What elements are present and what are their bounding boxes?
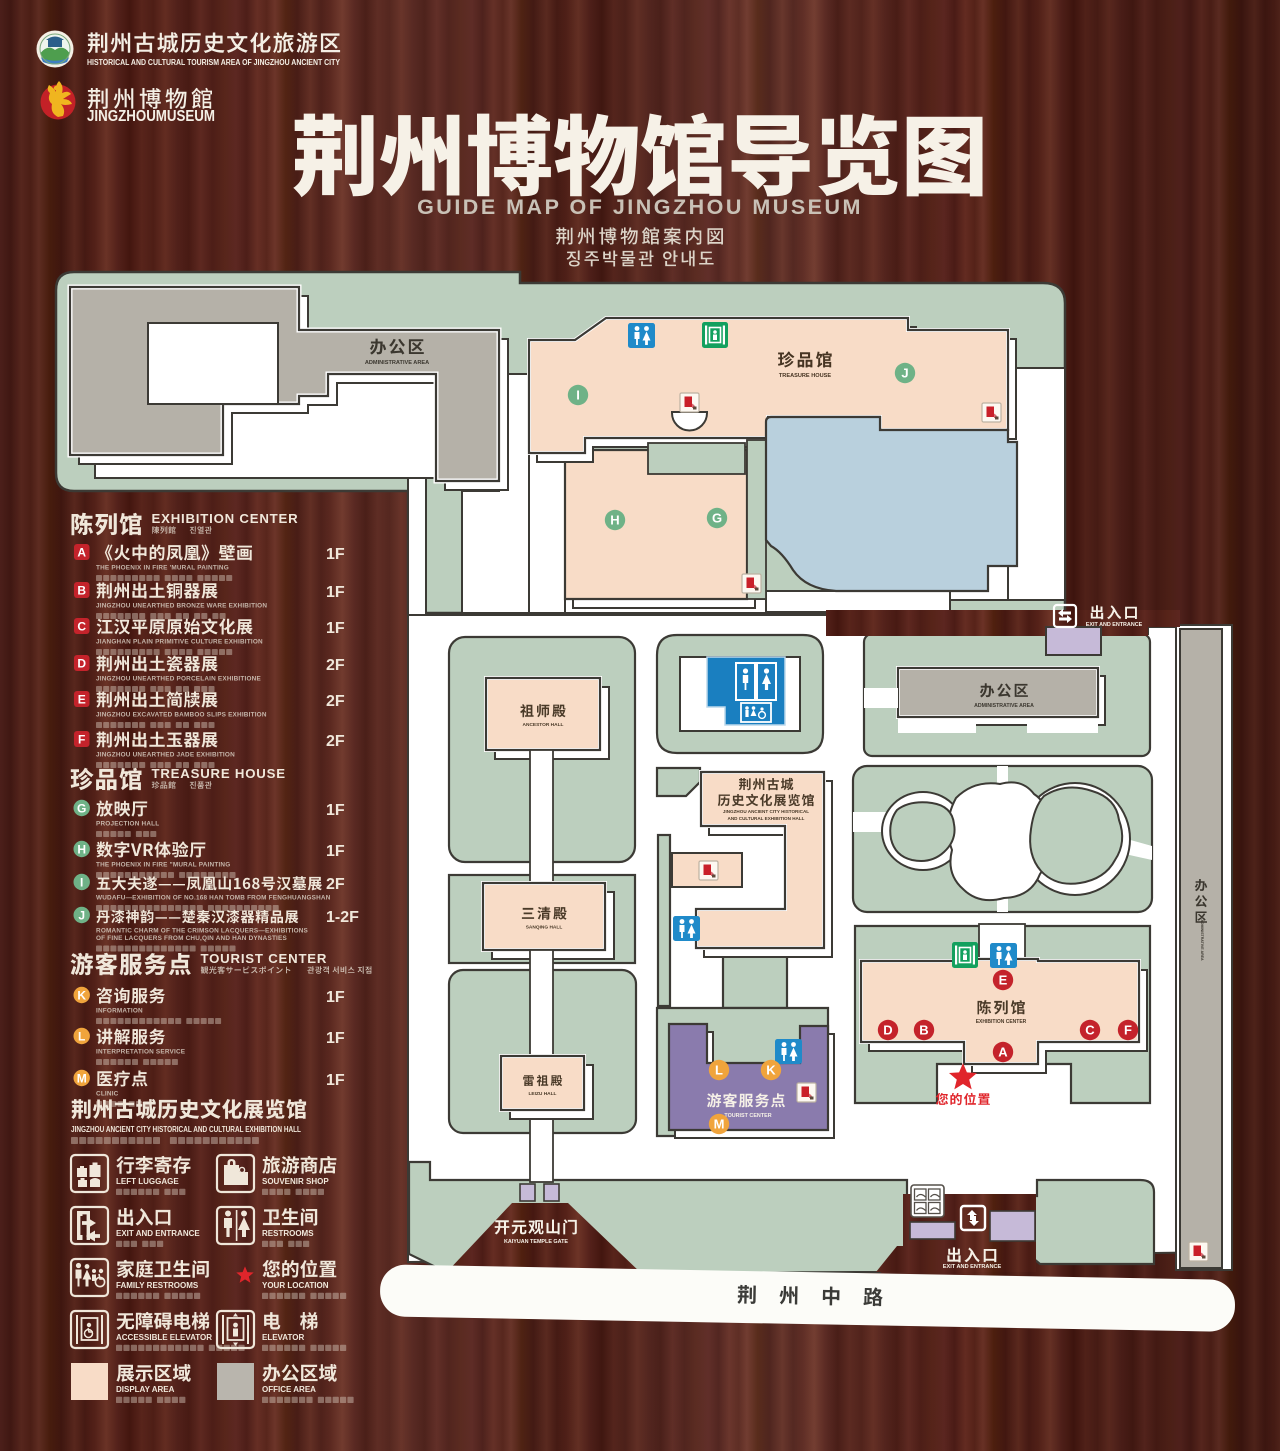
svg-text:K: K — [77, 989, 86, 1003]
svg-text:INFORMATION: INFORMATION — [96, 1008, 143, 1015]
svg-text:1F: 1F — [326, 620, 345, 637]
svg-text:J: J — [78, 909, 85, 923]
svg-text:M: M — [77, 1072, 87, 1086]
svg-text:1-2F: 1-2F — [326, 909, 359, 926]
svg-text:1F: 1F — [326, 1030, 345, 1047]
svg-text:HISTORICAL AND CULTURAL TOURIS: HISTORICAL AND CULTURAL TOURISM AREA OF … — [87, 57, 340, 67]
svg-text:ADMINISTRATIVE AREA: ADMINISTRATIVE AREA — [974, 703, 1034, 709]
svg-text:EXIT AND ENTRANCE: EXIT AND ENTRANCE — [1086, 622, 1143, 628]
svg-text:A: A — [998, 1045, 1008, 1060]
svg-text:B: B — [77, 584, 86, 598]
svg-text:I: I — [576, 388, 580, 403]
svg-text:1F: 1F — [326, 989, 345, 1006]
svg-text:L: L — [78, 1030, 85, 1044]
svg-text:INTERPRETATION SERVICE: INTERPRETATION SERVICE — [96, 1049, 186, 1056]
svg-text:LEFT LUGGAGE: LEFT LUGGAGE — [116, 1177, 179, 1186]
svg-text:JINGZHOU ANCIENT CITY HISTORIC: JINGZHOU ANCIENT CITY HISTORICAL AND CUL… — [71, 1124, 301, 1134]
svg-text:1F: 1F — [326, 802, 345, 819]
svg-text:EXIT AND ENTRANCE: EXIT AND ENTRANCE — [116, 1229, 200, 1238]
svg-text:PROJECTION HALL: PROJECTION HALL — [96, 821, 159, 828]
svg-text:I: I — [80, 876, 83, 890]
svg-text:WUDAFU—EXHIBITION OF NO.168 HA: WUDAFU—EXHIBITION OF NO.168 HAN TOMB FRO… — [96, 895, 331, 902]
svg-text:SOUVENIR SHOP: SOUVENIR SHOP — [262, 1177, 329, 1186]
svg-text:2F: 2F — [326, 693, 345, 710]
svg-text:L: L — [715, 1063, 723, 1078]
svg-text:FAMILY RESTROOMS: FAMILY RESTROOMS — [116, 1281, 199, 1290]
svg-text:F: F — [78, 733, 85, 747]
svg-text:ADMINISTRATIVE AREA: ADMINISTRATIVE AREA — [1200, 919, 1204, 961]
svg-text:ACCESSIBLE ELEVATOR: ACCESSIBLE ELEVATOR — [116, 1333, 212, 1342]
svg-text:1F: 1F — [326, 843, 345, 860]
svg-text:H: H — [610, 513, 619, 528]
svg-text:JIANGHAN PLAIN PRIMITIVE CULTU: JIANGHAN PLAIN PRIMITIVE CULTURE EXHIBIT… — [96, 639, 263, 646]
svg-text:THE PHOENIX IN FIRE 'MURAL PAI: THE PHOENIX IN FIRE 'MURAL PAINTING — [96, 565, 229, 572]
svg-text:G: G — [712, 511, 722, 526]
svg-text:H: H — [77, 843, 86, 857]
svg-text:G: G — [77, 802, 86, 816]
svg-text:EXIT AND ENTRANCE: EXIT AND ENTRANCE — [943, 1264, 1002, 1270]
svg-text:TREASURE HOUSE: TREASURE HOUSE — [152, 766, 286, 781]
svg-text:M: M — [714, 1117, 725, 1132]
svg-text:CLINIC: CLINIC — [96, 1091, 119, 1098]
svg-text:JINGZHOU UNEARTHED JADE EXHIBI: JINGZHOU UNEARTHED JADE EXHIBITION — [96, 752, 235, 759]
svg-text:THE PHOENIX IN FIRE "MURAL PAI: THE PHOENIX IN FIRE "MURAL PAINTING — [96, 862, 230, 869]
svg-text:2F: 2F — [326, 876, 345, 893]
svg-text:LEIZU HALL: LEIZU HALL — [529, 1091, 557, 1097]
svg-text:KAIYUAN TEMPLE GATE: KAIYUAN TEMPLE GATE — [504, 1239, 568, 1245]
svg-text:ANCESTOR HALL: ANCESTOR HALL — [523, 722, 564, 728]
svg-text:B: B — [919, 1023, 928, 1038]
svg-text:EXHIBITION CENTER: EXHIBITION CENTER — [152, 511, 299, 526]
svg-text:F: F — [1124, 1023, 1132, 1038]
svg-text:2F: 2F — [326, 657, 345, 674]
svg-text:E: E — [78, 693, 86, 707]
svg-text:ELEVATOR: ELEVATOR — [262, 1333, 304, 1342]
svg-text:1F: 1F — [326, 584, 345, 601]
svg-text:TREASURE HOUSE: TREASURE HOUSE — [779, 373, 831, 379]
svg-text:JINGZHOU UNEARTHED BRONZE WARE: JINGZHOU UNEARTHED BRONZE WARE EXHIBITIO… — [96, 603, 267, 610]
svg-text:YOUR LOCATION: YOUR LOCATION — [262, 1281, 329, 1290]
svg-text:2F: 2F — [326, 733, 345, 750]
svg-text:JINGZHOU UNEARTHED PORCELAIN E: JINGZHOU UNEARTHED PORCELAIN EXHIBITIONE — [96, 676, 261, 683]
svg-text:DISPLAY AREA: DISPLAY AREA — [116, 1385, 175, 1394]
svg-text:K: K — [766, 1063, 776, 1078]
svg-text:TOURIST CENTER: TOURIST CENTER — [201, 951, 328, 966]
svg-text:C: C — [77, 620, 86, 634]
svg-text:ROMANTIC CHARM OF THE CRIMSON: ROMANTIC CHARM OF THE CRIMSON LACQUERS—E… — [96, 928, 309, 935]
svg-text:TOURIST CENTER: TOURIST CENTER — [724, 1113, 771, 1119]
svg-text:1F: 1F — [326, 546, 345, 563]
svg-text:AND CULTURAL EXHIBITION HALL: AND CULTURAL EXHIBITION HALL — [728, 816, 805, 821]
svg-text:D: D — [77, 657, 86, 671]
svg-text:ADMINISTRATIVE AREA: ADMINISTRATIVE AREA — [365, 360, 429, 366]
svg-text:JINGZHOUMUSEUM: JINGZHOUMUSEUM — [87, 108, 215, 125]
svg-text:E: E — [999, 973, 1008, 988]
svg-text:SANQING HALL: SANQING HALL — [526, 925, 563, 931]
svg-text:OF FINE LACQUERS FROM CHU,QIN: OF FINE LACQUERS FROM CHU,QIN AND HAN DY… — [96, 935, 287, 942]
svg-text:J: J — [901, 366, 908, 381]
svg-text:EXHIBITION CENTER: EXHIBITION CENTER — [976, 1019, 1027, 1025]
svg-text:A: A — [77, 546, 86, 560]
svg-text:C: C — [1085, 1023, 1095, 1038]
svg-text:1F: 1F — [326, 1072, 345, 1089]
svg-text:RESTROOMS: RESTROOMS — [262, 1229, 314, 1238]
svg-text:OFFICE AREA: OFFICE AREA — [262, 1385, 316, 1394]
svg-text:GUIDE MAP OF JINGZHOU MUSEUM: GUIDE MAP OF JINGZHOU MUSEUM — [417, 195, 863, 219]
svg-text:JINGZHOU EXCAVATED BAMBOO SLIP: JINGZHOU EXCAVATED BAMBOO SLIPS EXHIBITI… — [96, 712, 267, 719]
svg-text:JINGZHOU ANCIENT CITY HISTORIC: JINGZHOU ANCIENT CITY HISTORICAL — [723, 809, 809, 814]
svg-text:D: D — [883, 1023, 892, 1038]
